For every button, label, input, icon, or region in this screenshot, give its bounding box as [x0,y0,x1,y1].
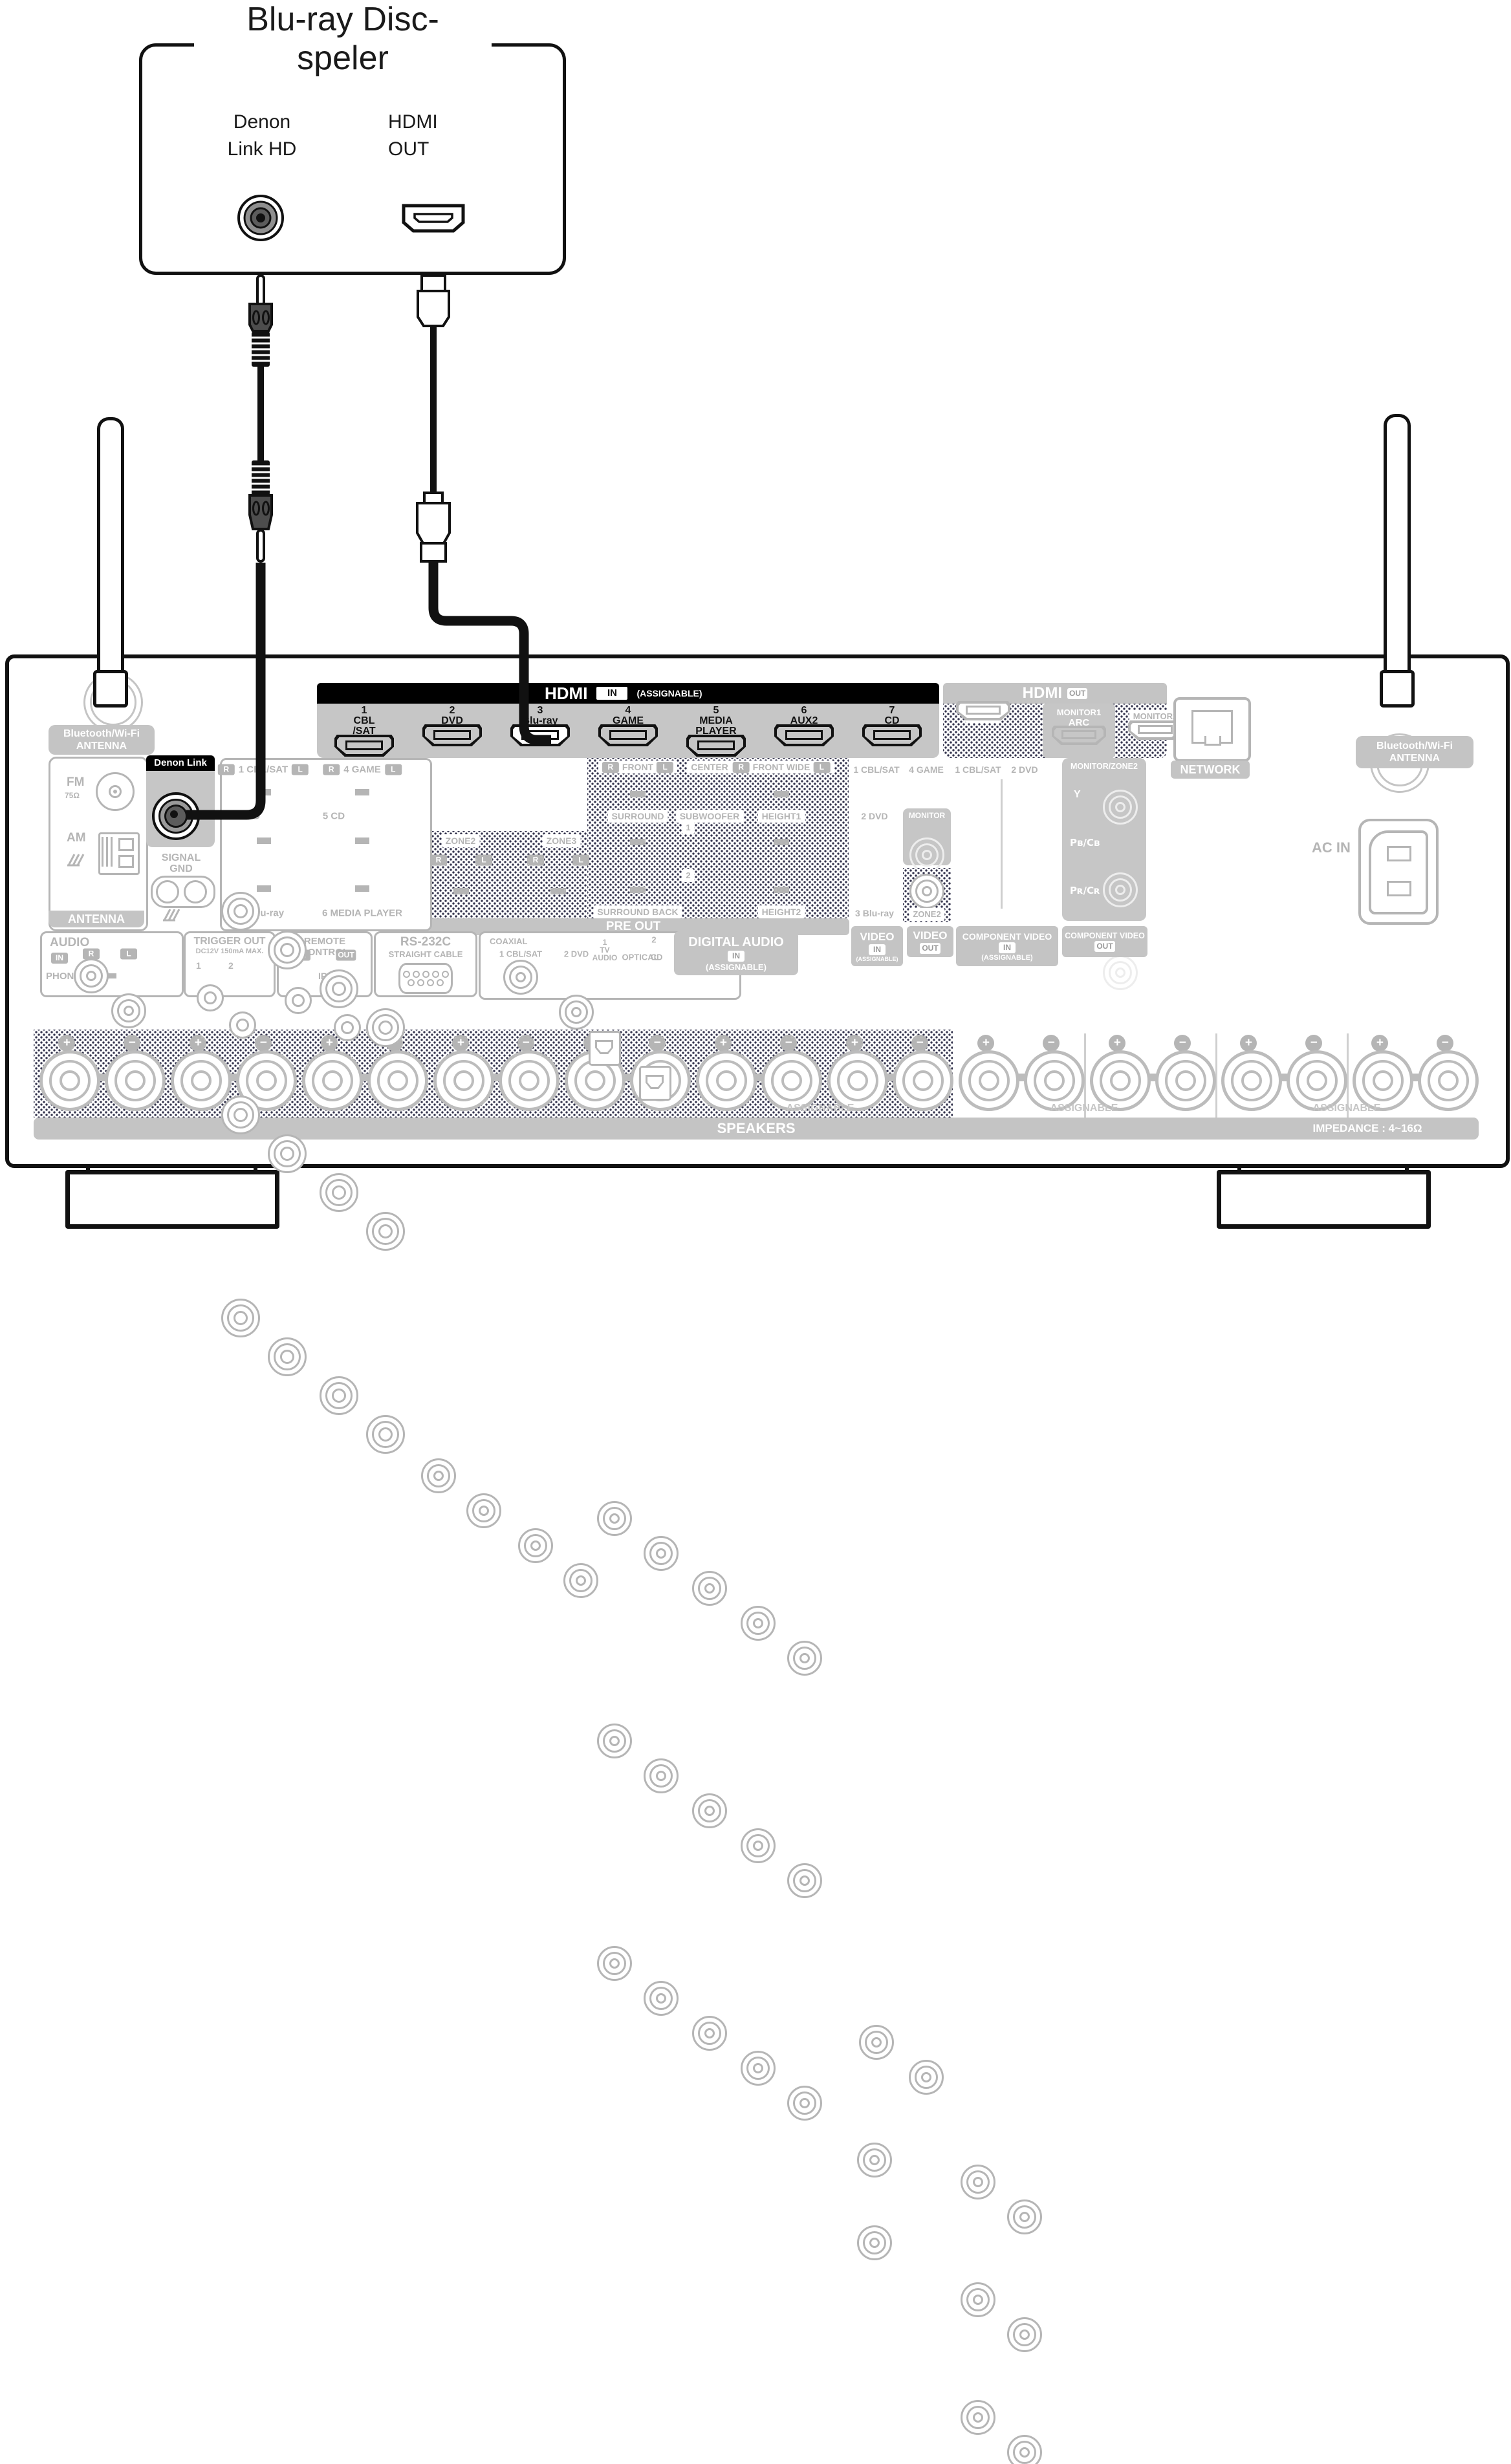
l-badge: L [813,762,830,773]
in-badge: IN [596,687,627,700]
audio-in-jack-game-l [366,1008,405,1047]
hdmi-plug-tip [422,276,445,291]
plus-terminal-icon [452,1035,469,1052]
preout-zone2-label: ZONE2 [442,834,480,847]
audio-in-jack-media-r [320,1376,358,1415]
digital-audio-title: DIGITAL AUDIO [688,935,783,950]
speaker-terminals-center [296,1032,428,1119]
am-terminal-lug [118,838,134,851]
pair-bar [774,839,789,845]
plus-terminal-icon [321,1035,338,1052]
video-in-banner: VIDEO IN (ASSIGNABLE) [851,926,903,966]
denon-link-hd-port [152,792,200,840]
minus-terminal-icon [124,1035,140,1052]
assignable-note: ASSIGNABLE [1313,1103,1381,1114]
minus-terminal-icon [255,1035,272,1052]
speaker-terminal [893,1050,953,1111]
port-num: 4 [587,705,669,716]
preout-jack-zone3-r [518,1528,553,1563]
hdmi-in-port-3-bluray-connected [510,724,570,746]
fm-antenna-jack [96,772,135,811]
port-num: 2 [411,705,493,716]
receiver-foot-left [65,1170,279,1229]
audio-in-jack-cblsat-l [268,931,307,969]
bluray-player-box [139,43,566,275]
audio-in-label-cblsat: R 1 CBL/SAT L [218,764,309,775]
speaker-terminal [1155,1050,1216,1111]
plus-terminal-icon [715,1035,732,1052]
audio-in-jack-media-l [366,1415,405,1454]
hdmi-out-monitor1-box: MONITOR1 ARC [1043,704,1115,758]
video-out-jack-monitor [909,838,944,872]
audio-in-jack-game-r [320,969,358,1008]
in-badge: IN [999,942,1016,953]
r-badge: R [323,764,340,775]
audio-in-jack-dvd-l [268,1134,307,1173]
pair-bar [630,791,646,797]
in-badge: IN [728,951,745,962]
component-out-box: MONITOR/ZONE2 Y Pʙ/Cʙ Pʀ/Cʀ [1062,758,1146,921]
denon-link-hd-label: Denon Link HD [146,755,215,771]
hdmi-out-title: HDMI [1023,684,1062,702]
minus-terminal-icon [1305,1035,1322,1052]
in-badge: IN [51,953,68,964]
video-in-jack-dvd [857,2143,892,2178]
remote-in-jack [285,987,312,1014]
trigger-out-box: TRIGGER OUT DC12V 150mA MAX. 1 2 [184,931,276,997]
audio-in-label-dvd: 2 DVD [232,811,260,822]
minus-terminal-icon [649,1035,666,1052]
am-label: AM [67,831,86,845]
audio-in-label-cd: 5 CD [323,811,345,822]
trigger-2-label: 2 [228,960,234,971]
wifi-antenna-base-right [1380,670,1415,708]
port-num: 3 [499,705,581,716]
component-out-title: COMPONENT VIDEO [1065,931,1145,940]
l-badge: L [572,855,589,866]
l-badge: L [475,855,492,866]
r-badge: R [602,762,619,773]
pair-bar [257,838,271,844]
speaker-terminal [39,1050,100,1111]
preout-subwoofer-label: SUBWOOFER [676,810,744,823]
minus-terminal-icon [517,1035,534,1052]
hdmi-plug-body [417,503,450,543]
label-text: 1 CBL/SAT [239,764,288,775]
video-in-bluray-label: 3 Blu-ray [855,908,894,918]
speaker-terminal [1024,1050,1085,1111]
component-in-dvd-label: 2 DVD [1011,764,1038,775]
component-in-jack [1007,2317,1042,2352]
audio-in-jack-cd-r [320,1173,358,1212]
preout-jack-center [692,1571,727,1606]
pair-bar [453,888,469,894]
preout-height2-label: HEIGHT2 [758,905,805,918]
out-badge: OUT [920,943,940,954]
r-badge: R [218,764,235,775]
video-zone2-box: ZONE2 [903,868,951,922]
wifi-antenna-left [97,417,124,677]
speaker-terminals-front-r [34,1032,165,1119]
hdmi-in-col-5: 5 MEDIA PLAYER [675,704,757,758]
speaker-terminal [1418,1050,1479,1111]
speaker-terminal [696,1050,757,1111]
minus-terminal-icon [1043,1035,1060,1052]
pair-bar [774,887,789,893]
video-monitor-box: MONITOR [903,808,951,865]
pair-bar [355,885,369,892]
plus-terminal-icon [58,1035,75,1052]
pair-bar [630,887,646,893]
phono-jack-r [74,958,109,993]
am-antenna-terminal [98,832,140,875]
am-terminal-lug [118,855,134,868]
speaker-terminal [433,1050,494,1111]
hdmi-in-col-4: 4 GAME [587,704,669,758]
subwoofer-2-label: 2 [682,869,694,882]
digital-audio-tag: DIGITAL AUDIO IN (ASSIGNABLE) [674,931,798,975]
speaker-terminal [499,1050,560,1111]
component-in-banner: COMPONENT VIDEO IN (ASSIGNABLE) [956,926,1058,966]
label-text: FRONT WIDE [753,761,810,773]
preout-jack-front-wide-l [787,1641,822,1676]
trigger-jack-2 [229,1011,256,1039]
coaxial-jack-dvd [559,995,594,1030]
preout-jack-front-r [597,1501,632,1536]
pair-bar [774,791,789,797]
bluray-player-title: Blu-ray Disc- speler [194,0,492,78]
optical-port-tv-audio [589,1031,621,1066]
component-in-title: COMPONENT VIDEO [962,931,1052,942]
hdmi-in-port-6 [774,724,834,746]
component-out-jack-y [1103,790,1138,825]
preout-jack-zone2-l [466,1493,501,1528]
player-hdmi-out-label: HDMI OUT [388,109,438,163]
preout-jack-surround-back-r [597,1946,632,1981]
r-badge: R [527,855,544,866]
gnd-screws [151,876,215,908]
hdmi-in-col-7: 7 CD [851,704,933,758]
trigger-out-title: TRIGGER OUT [186,936,274,947]
audio-in-jack-cblsat-r [221,892,260,931]
pr-cr-label: Pʀ/Cʀ [1070,885,1100,896]
pair-bar [630,839,646,845]
component-in-jack [961,2165,995,2199]
video-in-game-label: 4 GAME [909,764,944,775]
hdmi-in-panel: 1 CBL /SAT 2 DVD 3 Blu-ray 4 GAME 5 MEDI… [317,704,939,758]
l-badge: L [292,764,309,775]
impedance-label: IMPEDANCE : 4~16Ω [1312,1122,1422,1135]
rca-plug-pin [257,530,264,561]
plus-terminal-icon [1371,1035,1388,1052]
coax-1-label: 1 CBL/SAT [499,949,542,959]
subwoofer-1-label: 1 [682,821,694,834]
component-in-jack [1007,2199,1042,2234]
audio-in-label-game: R 4 GAME L [323,764,402,775]
optical-1-label: 1 TV AUDIO [592,938,618,962]
ground-icon [67,850,85,867]
hdmi-in-col-3: 3 Blu-ray [499,704,581,758]
divider [1001,779,1003,909]
optical-port-cd [639,1066,671,1101]
hdmi-in-col-1: 1 CBL /SAT [323,704,405,758]
preout-jack-zone3-l [563,1563,598,1598]
preout-jack-subwoofer-2 [692,2016,727,2051]
speaker-terminals-surround-r [428,1032,559,1119]
rs232c-title: RS-232C [376,935,475,949]
assignable-note: (ASSIGNABLE) [856,956,898,962]
minus-terminal-icon [780,1035,797,1052]
tuner-antenna-box: FM 75Ω AM ANTENNA [49,757,148,931]
preout-height1-label: HEIGHT1 [758,810,805,823]
video-in-dvd-label: 2 DVD [861,811,887,821]
coax-2-label: 2 DVD [564,949,589,959]
preout-jack-subwoofer-1 [692,1793,727,1828]
speaker-terminal [1353,1050,1413,1111]
am-terminal-fins [102,837,113,867]
out-badge: OUT [1094,941,1114,952]
rca-plug-ribs [252,460,270,495]
l-badge: L [657,762,673,773]
component-out-jack-pr [1103,955,1138,990]
speaker-terminal [1221,1050,1282,1111]
rs232c-connector [398,963,453,994]
plus-terminal-icon [190,1035,206,1052]
trigger-jack-1 [197,984,224,1011]
ac-prong-slot [1387,881,1411,896]
assignable-note: ASSIGNABLE [787,1103,854,1114]
hdmi-in-port-4 [598,724,658,746]
port-name: CBL /SAT [323,716,405,737]
hdmi-in-col-2: 2 DVD [411,704,493,758]
monitor-zone2-label: MONITOR/ZONE2 [1062,762,1146,771]
speaker-terminal [367,1050,428,1111]
coaxial-jack-cblsat [503,960,538,995]
hdmi-in-port-1 [334,735,394,757]
speaker-terminal [105,1050,166,1111]
network-label: NETWORK [1171,761,1250,779]
label-text: 4 GAME [343,764,381,775]
monitor1-label: MONITOR1 [1043,708,1115,717]
rca-plug-body [250,495,272,529]
preout-jack-height2-l [787,2086,822,2121]
preout-front-label: R FRONT L [598,761,677,773]
video-in-jack-cblsat [859,2025,894,2060]
speaker-terminal [171,1050,232,1111]
r-badge: R [83,949,100,960]
audio-in-jack-cd-l [366,1212,405,1251]
rs232c-sub: STRAIGHT CABLE [376,949,475,959]
audio-in-jack-bluray-l [268,1337,307,1376]
in-badge: IN [869,944,886,955]
audio-in-jack-dvd-r [221,1096,260,1134]
video-out-title: VIDEO [913,929,948,942]
preout-jack-height1-l [787,1863,822,1898]
video-in-cblsat-label: 1 CBL/SAT [853,764,899,775]
preout-jack-surround-l [644,1758,679,1793]
label-text: FRONT [622,761,653,773]
preout-center-label: CENTER [687,761,732,773]
speaker-terminal [761,1050,822,1111]
preout-surround-back-label: SURROUND BACK [593,905,682,918]
preout-jack-zone2-r [421,1458,456,1493]
remote-out-jack [334,1014,361,1041]
pair-bar [257,885,271,892]
preout-main-block [587,758,849,918]
rs232c-box: RS-232C STRAIGHT CABLE [374,931,477,997]
fm-label: FM [67,775,84,790]
hdmi-in-title-bar: HDMI IN (ASSIGNABLE) [317,683,939,704]
hdmi-out-port-zone2 [956,701,1010,720]
hdmi-out-port-monitor1 [1052,726,1106,745]
hdmi-plug-neck [424,493,442,503]
plus-terminal-icon [1240,1035,1257,1052]
preout-jack-height1-r [741,1828,776,1863]
hdmi-plug-body [418,291,449,326]
wifi-antenna-right [1384,414,1411,677]
assignable-note: ASSIGNABLE [1050,1103,1118,1114]
r-badge: R [733,762,750,773]
port-num: 7 [851,705,933,716]
preout-jack-height2-r [741,2051,776,2086]
pair-bar [257,789,271,795]
video-in-jack-bluray [857,2225,892,2260]
hdmi-in-port-5 [686,735,746,757]
trigger-1-label: 1 [196,960,201,971]
plus-terminal-icon [846,1035,863,1052]
hdmi-in-port-7 [862,724,922,746]
component-in-jack [1007,2435,1042,2464]
ac-inlet [1358,819,1439,925]
y-label: Y [1074,789,1081,801]
r-badge: R [430,855,447,866]
minus-terminal-icon [911,1035,928,1052]
signal-gnd-label: SIGNAL GND [154,852,208,874]
pair-bar [355,789,369,795]
video-in-jack-game [909,2060,944,2095]
wifi-antenna-base-left [93,670,128,708]
component-in-jack [961,2282,995,2317]
component-out-banner: COMPONENT VIDEO OUT [1062,926,1147,957]
ac-in-label: AC IN [1312,839,1351,856]
preout-jack-surround-back-l [644,1981,679,2016]
audio-in-label-media: 6 MEDIA PLAYER [322,908,402,919]
out-badge: OUT [336,950,356,961]
video-zone2-label: ZONE2 [909,908,944,921]
assignable-note: (ASSIGNABLE) [981,954,1032,962]
component-out-jack-pb [1103,872,1138,907]
preout-jack-front-l [644,1536,679,1571]
gnd-screw [184,880,207,903]
speaker-terminal [959,1050,1019,1111]
port-num: 5 [675,705,757,716]
hdmi-in-title: HDMI [545,684,587,704]
optical-2-label: CD [651,953,663,962]
ac-inlet-inner [1369,830,1428,914]
video-out-jack-zone2 [909,874,944,909]
plus-terminal-icon [977,1035,994,1052]
minus-terminal-icon [1174,1035,1191,1052]
bt-antenna-label-left: Bluetooth/Wi-Fi ANTENNA [49,725,155,755]
speaker-terminal [302,1050,363,1111]
preout-jack-front-wide-r [741,1606,776,1641]
speaker-terminal [827,1050,888,1111]
pair-bar [550,888,566,894]
port-num: 6 [763,705,845,716]
hdmi-in-col-6: 6 AUX2 [763,704,845,758]
rca-plug-ribs [252,332,270,367]
rca-plug-body [250,304,272,331]
video-in-title: VIDEO [860,931,895,944]
l-badge: L [120,949,137,960]
speaker-terminal [1287,1050,1347,1111]
pair-bar [355,838,369,844]
preout-jack-surround-r [597,1724,632,1758]
ground-icon [163,905,181,922]
denon-link-port-core [170,810,178,818]
speaker-terminal [1090,1050,1151,1111]
speakers-title: SPEAKERS [717,1120,795,1137]
preout-front-wide-label: R FRONT WIDE L [729,761,834,773]
l-badge: L [385,764,402,775]
player-denon-link-label: Denon Link HD [213,109,310,163]
assignable-note: (ASSIGNABLE) [706,962,766,972]
ac-prong-slot [1387,846,1411,861]
antenna-banner: ANTENNA [49,911,144,927]
phono-jack-l [111,993,146,1028]
rca-plug-pin [257,276,264,305]
phono-box: AUDIO IN R L PHONO [40,931,184,997]
plus-terminal-icon [1109,1035,1125,1052]
video-out-banner: VIDEO OUT [907,926,953,957]
gnd-screw [156,880,179,903]
out-badge: OUT [1067,688,1087,699]
port-name: MEDIA PLAYER [675,716,757,737]
receiver-foot-right [1217,1170,1431,1229]
preout-surround-label: SURROUND [608,810,668,823]
optical-2-num: 2 [651,935,656,945]
monitor-label: MONITOR [903,811,951,820]
network-port [1173,697,1251,762]
trigger-out-spec: DC12V 150mA MAX. [186,947,274,955]
component-in-cblsat-label: 1 CBL/SAT [955,764,1001,775]
rj45-notch [1204,736,1221,746]
audio-in-jack-bluray-r [221,1299,260,1337]
pb-cb-label: Pʙ/Cʙ [1070,837,1100,848]
hdmi-in-port-2 [422,724,482,746]
preout-zone3-label: ZONE3 [543,834,581,847]
hdmi-out-panel: ZONE2 MONITOR1 ARC MONITOR2 [943,704,1167,758]
minus-terminal-icon [1437,1035,1453,1052]
port-num: 1 [323,705,405,716]
fm-ohm-label: 75Ω [65,791,80,800]
component-in-jack [961,2400,995,2435]
hdmi-in-note: (ASSIGNABLE) [636,688,702,698]
hdmi-plug-tip [421,543,446,561]
bt-antenna-label-right: Bluetooth/Wi-Fi ANTENNA [1356,736,1473,768]
coaxial-label: COAXIAL [490,936,528,946]
